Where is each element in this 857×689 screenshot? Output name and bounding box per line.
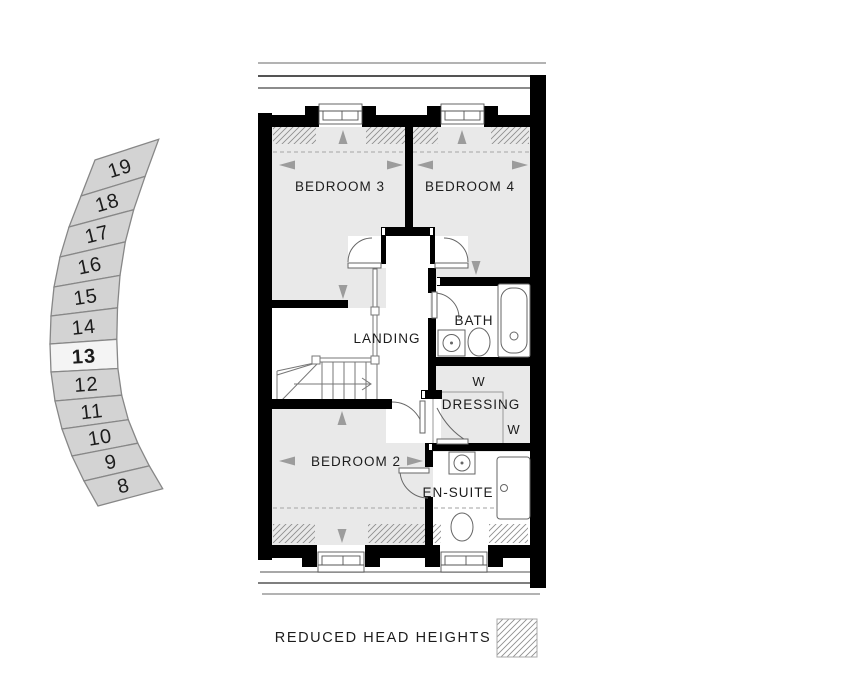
landing-stairs-area <box>272 308 428 399</box>
window-ensuite <box>441 552 487 572</box>
plot-number-label: 11 <box>79 400 104 424</box>
door-leaf-ensuite <box>399 468 429 473</box>
rail-post <box>371 356 379 364</box>
rail-post <box>312 356 320 364</box>
plot-number-label: 15 <box>72 285 99 310</box>
stair-rail-horizontal <box>316 358 375 362</box>
bath-toilet-icon <box>468 328 490 356</box>
bath-sink-icon <box>438 330 465 356</box>
window-bedroom4 <box>441 104 484 124</box>
ensuite-shower-icon <box>497 457 530 519</box>
wardrobe-label: W <box>472 374 485 389</box>
bedroom2-label: BEDROOM 2 <box>311 454 401 469</box>
bathtub-icon <box>498 284 530 357</box>
landing-label: LANDING <box>353 331 420 346</box>
ensuite-sink-icon <box>449 452 475 474</box>
plot-number-label: 13 <box>71 345 97 368</box>
wall-left <box>258 113 272 560</box>
wall-bed3-south <box>272 300 348 308</box>
plot-number-label: 12 <box>74 373 100 397</box>
legend-hatch-swatch <box>497 619 537 657</box>
plot-number-label: 10 <box>86 425 114 451</box>
ensuite-label: EN-SUITE <box>422 485 493 500</box>
wall-landing-chunk <box>381 227 435 236</box>
window-bedroom3 <box>319 104 362 124</box>
floorplan-page: 1918171615141312111098 <box>0 0 857 689</box>
wardrobe-label: W <box>507 422 520 437</box>
wall-bath-south <box>433 357 530 366</box>
plot-number-label: 14 <box>71 316 97 340</box>
door-leaf-bedroom4 <box>435 263 468 268</box>
door-leaf-bath <box>432 292 437 318</box>
ensuite-toilet-icon <box>451 513 473 541</box>
wall-bed3-bed4 <box>405 127 413 227</box>
door-leaf-bedroom3 <box>348 263 381 268</box>
bedroom3-label: BEDROOM 3 <box>295 179 385 194</box>
bedroom4-label: BEDROOM 4 <box>425 179 515 194</box>
door-leaf-bedroom2 <box>420 401 425 433</box>
window-bedroom2 <box>318 552 364 572</box>
legend: REDUCED HEAD HEIGHTS <box>275 619 537 657</box>
bath-label: BATH <box>454 313 493 328</box>
rail-post <box>371 307 379 315</box>
wall-bed2-north <box>272 399 392 409</box>
site-locator: 1918171615141312111098 <box>50 139 163 506</box>
floorplan-drawing: 1918171615141312111098 <box>0 0 857 689</box>
wall-party-right <box>530 75 546 588</box>
legend-label: REDUCED HEAD HEIGHTS <box>275 630 492 646</box>
dressing-label: DRESSING <box>442 397 521 412</box>
door-leaf-dressing <box>437 439 468 444</box>
